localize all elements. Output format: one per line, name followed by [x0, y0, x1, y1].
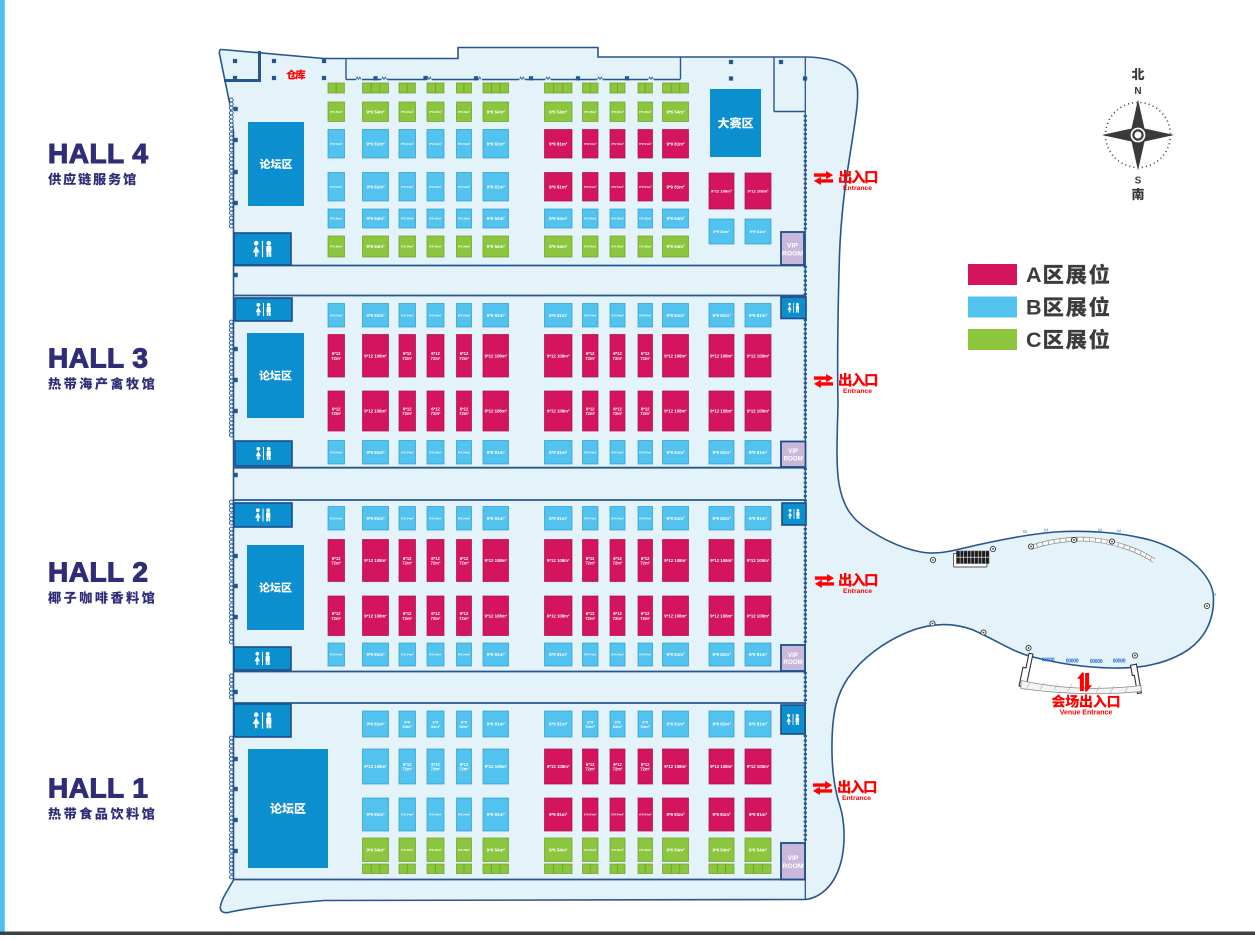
svg-text:6*6 36m²: 6*6 36m²: [330, 217, 342, 221]
svg-text:9*12 108m²: 9*12 108m²: [364, 558, 387, 563]
svg-text:9*9 81m²: 9*9 81m²: [549, 652, 568, 657]
svg-text:72m²: 72m²: [431, 616, 441, 621]
svg-text:9*9 81m²: 9*9 81m²: [549, 141, 568, 146]
svg-text:ROOM: ROOM: [782, 250, 803, 257]
svg-text:9*9 81m²: 9*9 81m²: [749, 722, 768, 727]
svg-text:9*12 108m²: 9*12 108m²: [747, 613, 770, 618]
svg-text:HALL 2: HALL 2: [48, 557, 149, 588]
svg-text:Entrance: Entrance: [843, 388, 872, 395]
svg-text:6*9 54m²: 6*9 54m²: [639, 313, 651, 317]
svg-text:6*9 54m²: 6*9 54m²: [611, 516, 623, 520]
svg-text:M: M: [1023, 529, 1027, 534]
svg-text:9*9 81m²: 9*9 81m²: [366, 516, 385, 521]
svg-text:72m²: 72m²: [585, 616, 595, 621]
svg-text:9*12 108m²: 9*12 108m²: [664, 409, 687, 414]
svg-text:9*12 108m²: 9*12 108m²: [664, 353, 687, 358]
svg-text:9*6 54m²: 9*6 54m²: [549, 109, 568, 114]
svg-text:72m²: 72m²: [459, 411, 469, 416]
svg-text:72m²: 72m²: [431, 411, 441, 416]
svg-text:9*12 108m²: 9*12 108m²: [364, 409, 387, 414]
svg-text:72m²: 72m²: [331, 561, 341, 566]
svg-text:9*9 81m²: 9*9 81m²: [487, 652, 506, 657]
svg-text:9*9 81m²: 9*9 81m²: [549, 313, 568, 318]
svg-text:6*9 54m²: 6*9 54m²: [458, 185, 470, 189]
svg-text:9*9 81m²: 9*9 81m²: [666, 141, 685, 146]
svg-text:9*6 54m²: 9*6 54m²: [749, 847, 768, 852]
svg-text:72m²: 72m²: [585, 411, 595, 416]
svg-text:6*9 54m²: 6*9 54m²: [401, 516, 413, 520]
svg-text:9*12 108m²: 9*12 108m²: [747, 409, 770, 414]
svg-text:9*9 81m²: 9*9 81m²: [487, 516, 506, 521]
svg-text:6*9 54m²: 6*9 54m²: [401, 653, 413, 657]
svg-text:72m²: 72m²: [459, 356, 469, 361]
svg-text:00000: 00000: [1113, 659, 1126, 665]
svg-text:9*12 108m²: 9*12 108m²: [710, 353, 733, 358]
svg-text:9*9 81m²: 9*9 81m²: [712, 313, 731, 318]
svg-text:6*9 54m²: 6*9 54m²: [429, 813, 441, 817]
svg-text:9*6 54m²: 9*6 54m²: [366, 847, 385, 852]
svg-text:N: N: [1134, 86, 1141, 97]
svg-text:ROOM: ROOM: [782, 863, 803, 870]
svg-text:9*9 81m²: 9*9 81m²: [666, 812, 685, 817]
svg-text:9*12 108m²: 9*12 108m²: [547, 764, 570, 769]
svg-text:6*9 54m²: 6*9 54m²: [429, 450, 441, 454]
svg-text:Entrance: Entrance: [843, 185, 872, 192]
svg-text:9*9 81m²: 9*9 81m²: [549, 450, 568, 455]
svg-text:72m²: 72m²: [640, 411, 650, 416]
svg-text:9*9 81m²: 9*9 81m²: [749, 812, 768, 817]
svg-text:9*6 54m²: 9*6 54m²: [487, 216, 506, 221]
svg-text:9*6 54m²: 9*6 54m²: [712, 847, 731, 852]
svg-text:9*9 81m²: 9*9 81m²: [366, 812, 385, 817]
svg-text:HALL 3: HALL 3: [48, 343, 149, 374]
svg-text:9*9 81m²: 9*9 81m²: [487, 184, 506, 189]
svg-text:72m²: 72m²: [613, 767, 623, 772]
svg-text:9*12 108m²: 9*12 108m²: [747, 558, 770, 563]
svg-text:HALL 1: HALL 1: [48, 773, 149, 804]
svg-text:6*9 54m²: 6*9 54m²: [458, 450, 470, 454]
svg-text:72m²: 72m²: [459, 561, 469, 566]
svg-text:6*9 54m²: 6*9 54m²: [584, 142, 596, 146]
svg-text:6*9 54m²: 6*9 54m²: [611, 653, 623, 657]
svg-text:9*12 108m²: 9*12 108m²: [664, 613, 687, 618]
svg-text:ROOM: ROOM: [784, 455, 803, 462]
svg-text:9*9 81m²: 9*9 81m²: [713, 229, 730, 234]
svg-text:6*9 54m²: 6*9 54m²: [458, 653, 470, 657]
svg-text:72m²: 72m²: [585, 767, 595, 772]
svg-text:9*6 54m²: 9*6 54m²: [549, 847, 568, 852]
svg-text:6*6 36m²: 6*6 36m²: [401, 848, 413, 852]
svg-text:9*6 54m²: 9*6 54m²: [666, 847, 685, 852]
svg-text:VIP: VIP: [788, 652, 798, 659]
svg-text:6*9 54m²: 6*9 54m²: [584, 516, 596, 520]
svg-text:9*12 108m²: 9*12 108m²: [747, 353, 770, 358]
svg-text:9*12 108m²: 9*12 108m²: [364, 764, 387, 769]
svg-text:6*9 54m²: 6*9 54m²: [458, 516, 470, 520]
svg-text:B: B: [1026, 296, 1042, 320]
svg-text:9*9 81m²: 9*9 81m²: [549, 812, 568, 817]
svg-text:72m²: 72m²: [402, 767, 412, 772]
svg-text:72m²: 72m²: [331, 411, 341, 416]
svg-text:6*9 54m²: 6*9 54m²: [330, 185, 342, 189]
svg-text:00000: 00000: [1066, 659, 1079, 665]
svg-text:72m²: 72m²: [402, 411, 412, 416]
svg-text:9*6 54m²: 9*6 54m²: [366, 244, 385, 249]
svg-text:6*9 54m²: 6*9 54m²: [429, 516, 441, 520]
svg-text:9*9 81m²: 9*9 81m²: [750, 229, 767, 234]
svg-text:Venue Entrance: Venue Entrance: [1060, 710, 1113, 717]
svg-text:9*12 108m²: 9*12 108m²: [747, 764, 770, 769]
svg-text:9*9 81m²: 9*9 81m²: [666, 450, 685, 455]
svg-text:9*9 81m²: 9*9 81m²: [366, 184, 385, 189]
svg-text:72m²: 72m²: [402, 561, 412, 566]
svg-text:6*9 54m²: 6*9 54m²: [458, 142, 470, 146]
svg-text:S: S: [1135, 176, 1142, 187]
svg-text:9*12 108m²: 9*12 108m²: [485, 409, 508, 414]
svg-text:6*9 54m²: 6*9 54m²: [429, 185, 441, 189]
svg-text:9*6 54m²: 9*6 54m²: [487, 244, 506, 249]
svg-text:6*6 36m²: 6*6 36m²: [401, 110, 413, 114]
svg-text:9*12 108m²: 9*12 108m²: [485, 764, 508, 769]
svg-text:6*9 54m²: 6*9 54m²: [584, 813, 596, 817]
svg-text:72m²: 72m²: [613, 561, 623, 566]
svg-text:9*9 81m²: 9*9 81m²: [666, 516, 685, 521]
svg-text:54m²: 54m²: [613, 724, 623, 729]
svg-text:9*6 54m²: 9*6 54m²: [549, 244, 568, 249]
svg-text:6*9 54m²: 6*9 54m²: [611, 185, 623, 189]
svg-text:6*9 54m²: 6*9 54m²: [611, 142, 623, 146]
svg-text:9*9 81m²: 9*9 81m²: [712, 652, 731, 657]
svg-text:54m²: 54m²: [641, 724, 651, 729]
svg-text:54m²: 54m²: [431, 724, 441, 729]
svg-text:9*6 54m²: 9*6 54m²: [666, 216, 685, 221]
svg-text:9*12 108m²: 9*12 108m²: [485, 613, 508, 618]
svg-text:9*9 81m²: 9*9 81m²: [749, 313, 768, 318]
svg-text:6*6 36m²: 6*6 36m²: [330, 110, 342, 114]
svg-text:6*9 54m²: 6*9 54m²: [639, 813, 651, 817]
svg-text:72m²: 72m²: [613, 616, 623, 621]
svg-text:6*9 54m²: 6*9 54m²: [429, 653, 441, 657]
svg-text:6*9 54m²: 6*9 54m²: [584, 653, 596, 657]
svg-text:72m²: 72m²: [331, 356, 341, 361]
svg-text:6*9 54m²: 6*9 54m²: [401, 185, 413, 189]
svg-text:C: C: [1026, 328, 1042, 352]
svg-text:HALL 4: HALL 4: [48, 138, 149, 169]
svg-text:M: M: [1117, 529, 1121, 534]
svg-text:6*6 36m²: 6*6 36m²: [611, 848, 623, 852]
svg-text:6*6 36m²: 6*6 36m²: [611, 110, 623, 114]
svg-text:9*9 81m²: 9*9 81m²: [487, 812, 506, 817]
svg-text:6*9 54m²: 6*9 54m²: [584, 185, 596, 189]
svg-text:72m²: 72m²: [640, 767, 650, 772]
svg-text:72m²: 72m²: [402, 356, 412, 361]
svg-text:6*6 36m²: 6*6 36m²: [639, 217, 651, 221]
svg-text:6*6 36m²: 6*6 36m²: [401, 245, 413, 249]
svg-text:6*6 36m²: 6*6 36m²: [639, 245, 651, 249]
svg-text:6*6 36m²: 6*6 36m²: [458, 110, 470, 114]
svg-text:00000: 00000: [1090, 659, 1103, 665]
svg-text:9*9 81m²: 9*9 81m²: [366, 313, 385, 318]
svg-text:9*9 81m²: 9*9 81m²: [666, 652, 685, 657]
svg-text:6*6 36m²: 6*6 36m²: [611, 217, 623, 221]
svg-text:72m²: 72m²: [640, 356, 650, 361]
svg-text:6*9 54m²: 6*9 54m²: [401, 813, 413, 817]
svg-text:6*6 36m²: 6*6 36m²: [458, 217, 470, 221]
svg-text:72m²: 72m²: [402, 616, 412, 621]
svg-text:9*12 108m²: 9*12 108m²: [547, 613, 570, 618]
svg-text:6*6 36m²: 6*6 36m²: [611, 245, 623, 249]
svg-text:VIP: VIP: [788, 448, 798, 455]
svg-text:M: M: [1098, 528, 1102, 533]
svg-text:6*6 36m²: 6*6 36m²: [584, 217, 596, 221]
svg-text:6*6 36m²: 6*6 36m²: [429, 110, 441, 114]
svg-text:6*6 36m²: 6*6 36m²: [458, 245, 470, 249]
svg-text:9*6 54m²: 9*6 54m²: [666, 244, 685, 249]
svg-text:9*12 108m²: 9*12 108m²: [710, 409, 733, 414]
svg-text:9*12 108m²: 9*12 108m²: [364, 353, 387, 358]
svg-text:6*9 54m²: 6*9 54m²: [401, 313, 413, 317]
svg-text:9*12 108m²: 9*12 108m²: [364, 613, 387, 618]
svg-text:9*9 81m²: 9*9 81m²: [712, 812, 731, 817]
svg-text:6*6 36m²: 6*6 36m²: [401, 217, 413, 221]
svg-text:6*6 36m²: 6*6 36m²: [639, 110, 651, 114]
svg-text:9*9 81m²: 9*9 81m²: [487, 450, 506, 455]
svg-text:6*6 36m²: 6*6 36m²: [639, 848, 651, 852]
svg-text:6*9 54m²: 6*9 54m²: [330, 516, 342, 520]
svg-text:9*9 81m²: 9*9 81m²: [712, 722, 731, 727]
svg-text:6*9 54m²: 6*9 54m²: [429, 142, 441, 146]
svg-text:72m²: 72m²: [640, 561, 650, 566]
svg-text:54m²: 54m²: [586, 724, 596, 729]
svg-text:72m²: 72m²: [431, 767, 441, 772]
svg-text:72m²: 72m²: [459, 616, 469, 621]
svg-text:6*9 54m²: 6*9 54m²: [639, 185, 651, 189]
svg-text:9*12 108m²: 9*12 108m²: [547, 409, 570, 414]
svg-text:VIP: VIP: [788, 855, 799, 862]
svg-text:6*9 54m²: 6*9 54m²: [401, 142, 413, 146]
svg-text:9*6 54m²: 9*6 54m²: [549, 216, 568, 221]
svg-text:6*9 54m²: 6*9 54m²: [611, 450, 623, 454]
svg-text:9*12 108m²: 9*12 108m²: [485, 558, 508, 563]
svg-text:9*6 54m²: 9*6 54m²: [366, 109, 385, 114]
svg-text:9*12 108m²: 9*12 108m²: [748, 189, 770, 194]
svg-text:9*9 81m²: 9*9 81m²: [712, 516, 731, 521]
svg-text:00000: 00000: [1042, 658, 1055, 664]
svg-text:M: M: [1212, 592, 1216, 597]
svg-text:9*9 81m²: 9*9 81m²: [666, 313, 685, 318]
svg-text:9*6 54m²: 9*6 54m²: [666, 109, 685, 114]
svg-text:72m²: 72m²: [331, 616, 341, 621]
svg-text:ROOM: ROOM: [783, 659, 802, 666]
svg-text:6*9 54m²: 6*9 54m²: [639, 142, 651, 146]
svg-text:6*9 54m²: 6*9 54m²: [611, 313, 623, 317]
svg-text:6*6 36m²: 6*6 36m²: [458, 848, 470, 852]
svg-text:M: M: [1044, 528, 1048, 533]
svg-text:Entrance: Entrance: [842, 795, 871, 802]
svg-text:6*9 54m²: 6*9 54m²: [429, 313, 441, 317]
svg-text:9*6 54m²: 9*6 54m²: [487, 847, 506, 852]
svg-text:9*9 81m²: 9*9 81m²: [366, 450, 385, 455]
svg-text:9*9 81m²: 9*9 81m²: [487, 141, 506, 146]
svg-text:6*9 54m²: 6*9 54m²: [584, 450, 596, 454]
svg-text:6*6 36m²: 6*6 36m²: [429, 217, 441, 221]
svg-text:9*12 108m²: 9*12 108m²: [710, 764, 733, 769]
svg-text:9*12 108m²: 9*12 108m²: [664, 558, 687, 563]
svg-text:9*12 108m²: 9*12 108m²: [664, 764, 687, 769]
svg-text:9*9 81m²: 9*9 81m²: [366, 652, 385, 657]
svg-text:6*6 36m²: 6*6 36m²: [330, 245, 342, 249]
svg-text:72m²: 72m²: [613, 411, 623, 416]
svg-text:54m²: 54m²: [403, 724, 413, 729]
svg-text:9*6 54m²: 9*6 54m²: [366, 216, 385, 221]
svg-text:9*9 81m²: 9*9 81m²: [666, 722, 685, 727]
svg-text:9*9 81m²: 9*9 81m²: [549, 184, 568, 189]
svg-text:72m²: 72m²: [585, 356, 595, 361]
svg-text:6*9 54m²: 6*9 54m²: [330, 653, 342, 657]
svg-text:9*9 81m²: 9*9 81m²: [712, 450, 731, 455]
svg-text:9*9 81m²: 9*9 81m²: [666, 184, 685, 189]
svg-text:9*12 108m²: 9*12 108m²: [711, 189, 733, 194]
svg-text:6*9 54m²: 6*9 54m²: [330, 142, 342, 146]
svg-text:6*9 54m²: 6*9 54m²: [458, 313, 470, 317]
svg-text:72m²: 72m²: [640, 616, 650, 621]
svg-text:9*9 81m²: 9*9 81m²: [487, 722, 506, 727]
svg-text:9*9 81m²: 9*9 81m²: [749, 516, 768, 521]
svg-text:9*9 81m²: 9*9 81m²: [366, 722, 385, 727]
svg-text:Entrance: Entrance: [843, 588, 872, 595]
svg-text:9*12 108m²: 9*12 108m²: [485, 353, 508, 358]
svg-text:72m²: 72m²: [613, 356, 623, 361]
svg-text:9*9 81m²: 9*9 81m²: [549, 516, 568, 521]
svg-text:9*9 81m²: 9*9 81m²: [549, 722, 568, 727]
svg-text:6*9 54m²: 6*9 54m²: [330, 450, 342, 454]
svg-text:9*9 81m²: 9*9 81m²: [487, 313, 506, 318]
svg-text:9*9 81m²: 9*9 81m²: [366, 141, 385, 146]
svg-text:54m²: 54m²: [459, 724, 469, 729]
svg-text:9*9 81m²: 9*9 81m²: [749, 652, 768, 657]
svg-text:6*9 54m²: 6*9 54m²: [401, 450, 413, 454]
svg-text:9*12 108m²: 9*12 108m²: [710, 558, 733, 563]
svg-text:6*6 36m²: 6*6 36m²: [429, 848, 441, 852]
svg-text:9*12 108m²: 9*12 108m²: [547, 353, 570, 358]
svg-text:6*9 54m²: 6*9 54m²: [639, 516, 651, 520]
svg-text:72m²: 72m²: [585, 561, 595, 566]
svg-text:72m²: 72m²: [431, 561, 441, 566]
svg-text:VIP: VIP: [787, 243, 798, 250]
svg-text:6*9 54m²: 6*9 54m²: [330, 313, 342, 317]
svg-text:9*9 81m²: 9*9 81m²: [749, 450, 768, 455]
svg-text:6*9 54m²: 6*9 54m²: [639, 450, 651, 454]
svg-text:6*6 36m²: 6*6 36m²: [429, 245, 441, 249]
svg-text:6*6 36m²: 6*6 36m²: [584, 245, 596, 249]
svg-text:6*6 36m²: 6*6 36m²: [584, 110, 596, 114]
svg-text:6*9 54m²: 6*9 54m²: [611, 813, 623, 817]
svg-text:6*9 54m²: 6*9 54m²: [639, 653, 651, 657]
svg-text:72m²: 72m²: [431, 356, 441, 361]
svg-text:A: A: [1026, 263, 1042, 287]
svg-text:72m²: 72m²: [459, 767, 469, 772]
svg-text:9*6 54m²: 9*6 54m²: [487, 109, 506, 114]
svg-text:6*9 54m²: 6*9 54m²: [458, 813, 470, 817]
svg-text:6*9 54m²: 6*9 54m²: [584, 313, 596, 317]
svg-text:9*12 108m²: 9*12 108m²: [710, 613, 733, 618]
svg-text:9*12 108m²: 9*12 108m²: [547, 558, 570, 563]
svg-text:6*6 36m²: 6*6 36m²: [584, 848, 596, 852]
